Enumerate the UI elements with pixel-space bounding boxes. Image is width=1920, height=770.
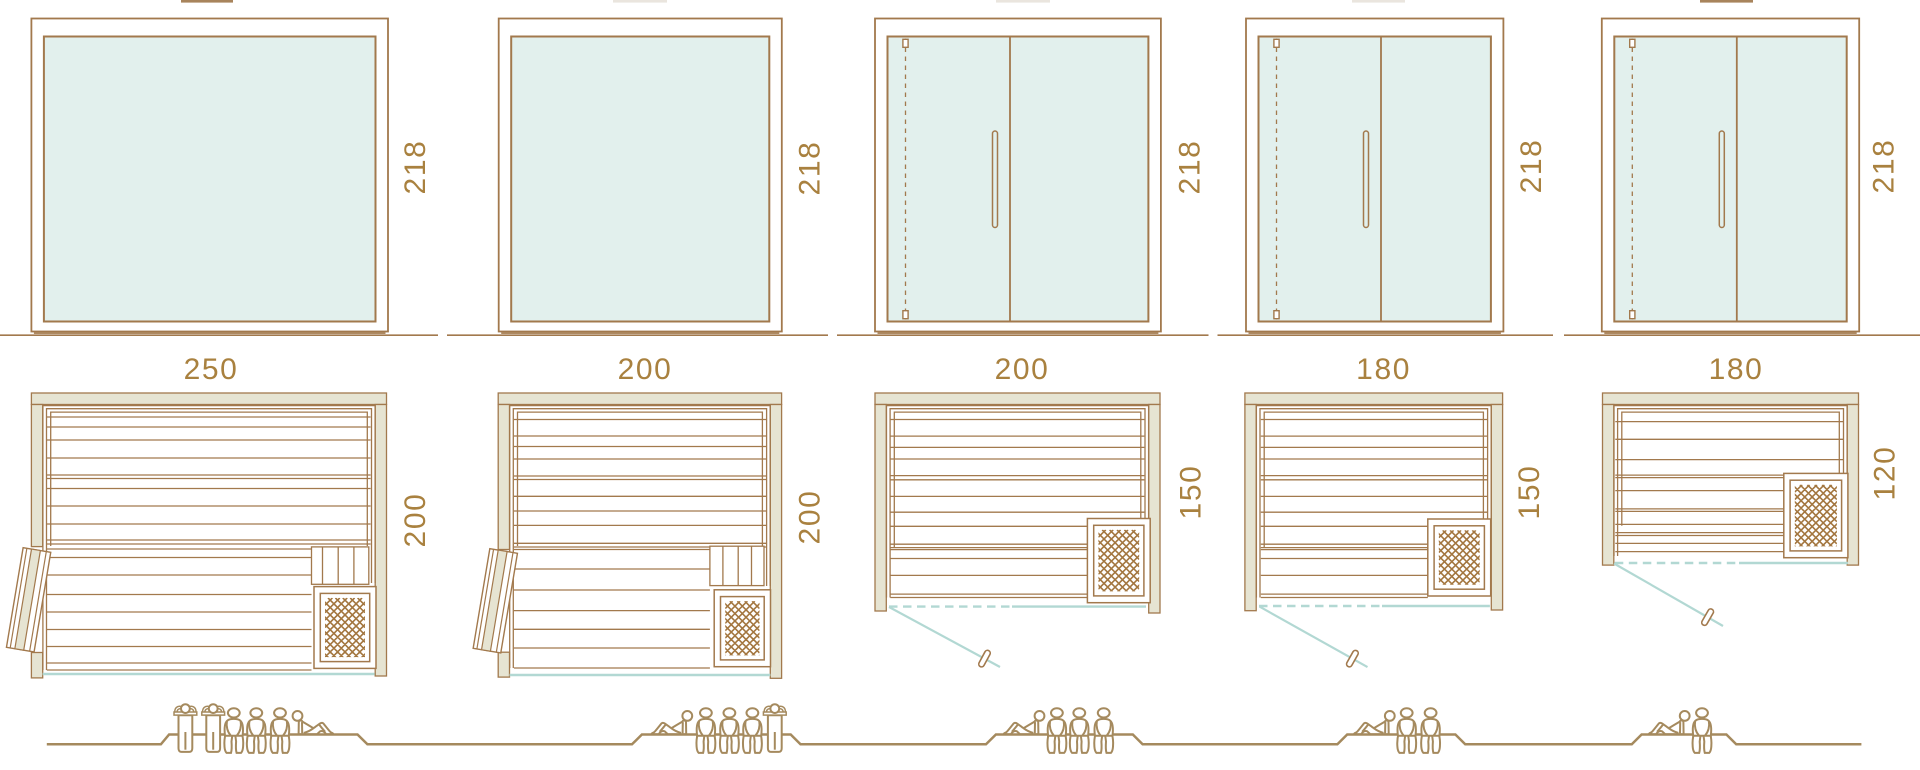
svg-text:200: 200	[618, 353, 673, 386]
svg-text:120: 120	[1869, 446, 1902, 501]
svg-text:218: 218	[1868, 139, 1901, 194]
svg-text:200: 200	[995, 353, 1050, 386]
svg-text:250: 250	[184, 353, 239, 386]
svg-text:218: 218	[399, 140, 432, 195]
svg-text:200: 200	[794, 490, 827, 545]
svg-text:150: 150	[1175, 465, 1208, 520]
svg-text:218: 218	[794, 141, 827, 196]
svg-text:180: 180	[1356, 353, 1411, 386]
svg-text:150: 150	[1513, 465, 1546, 520]
svg-text:180: 180	[1709, 353, 1764, 386]
svg-text:218: 218	[1174, 140, 1207, 195]
svg-text:200: 200	[399, 493, 432, 548]
svg-text:218: 218	[1515, 139, 1548, 194]
